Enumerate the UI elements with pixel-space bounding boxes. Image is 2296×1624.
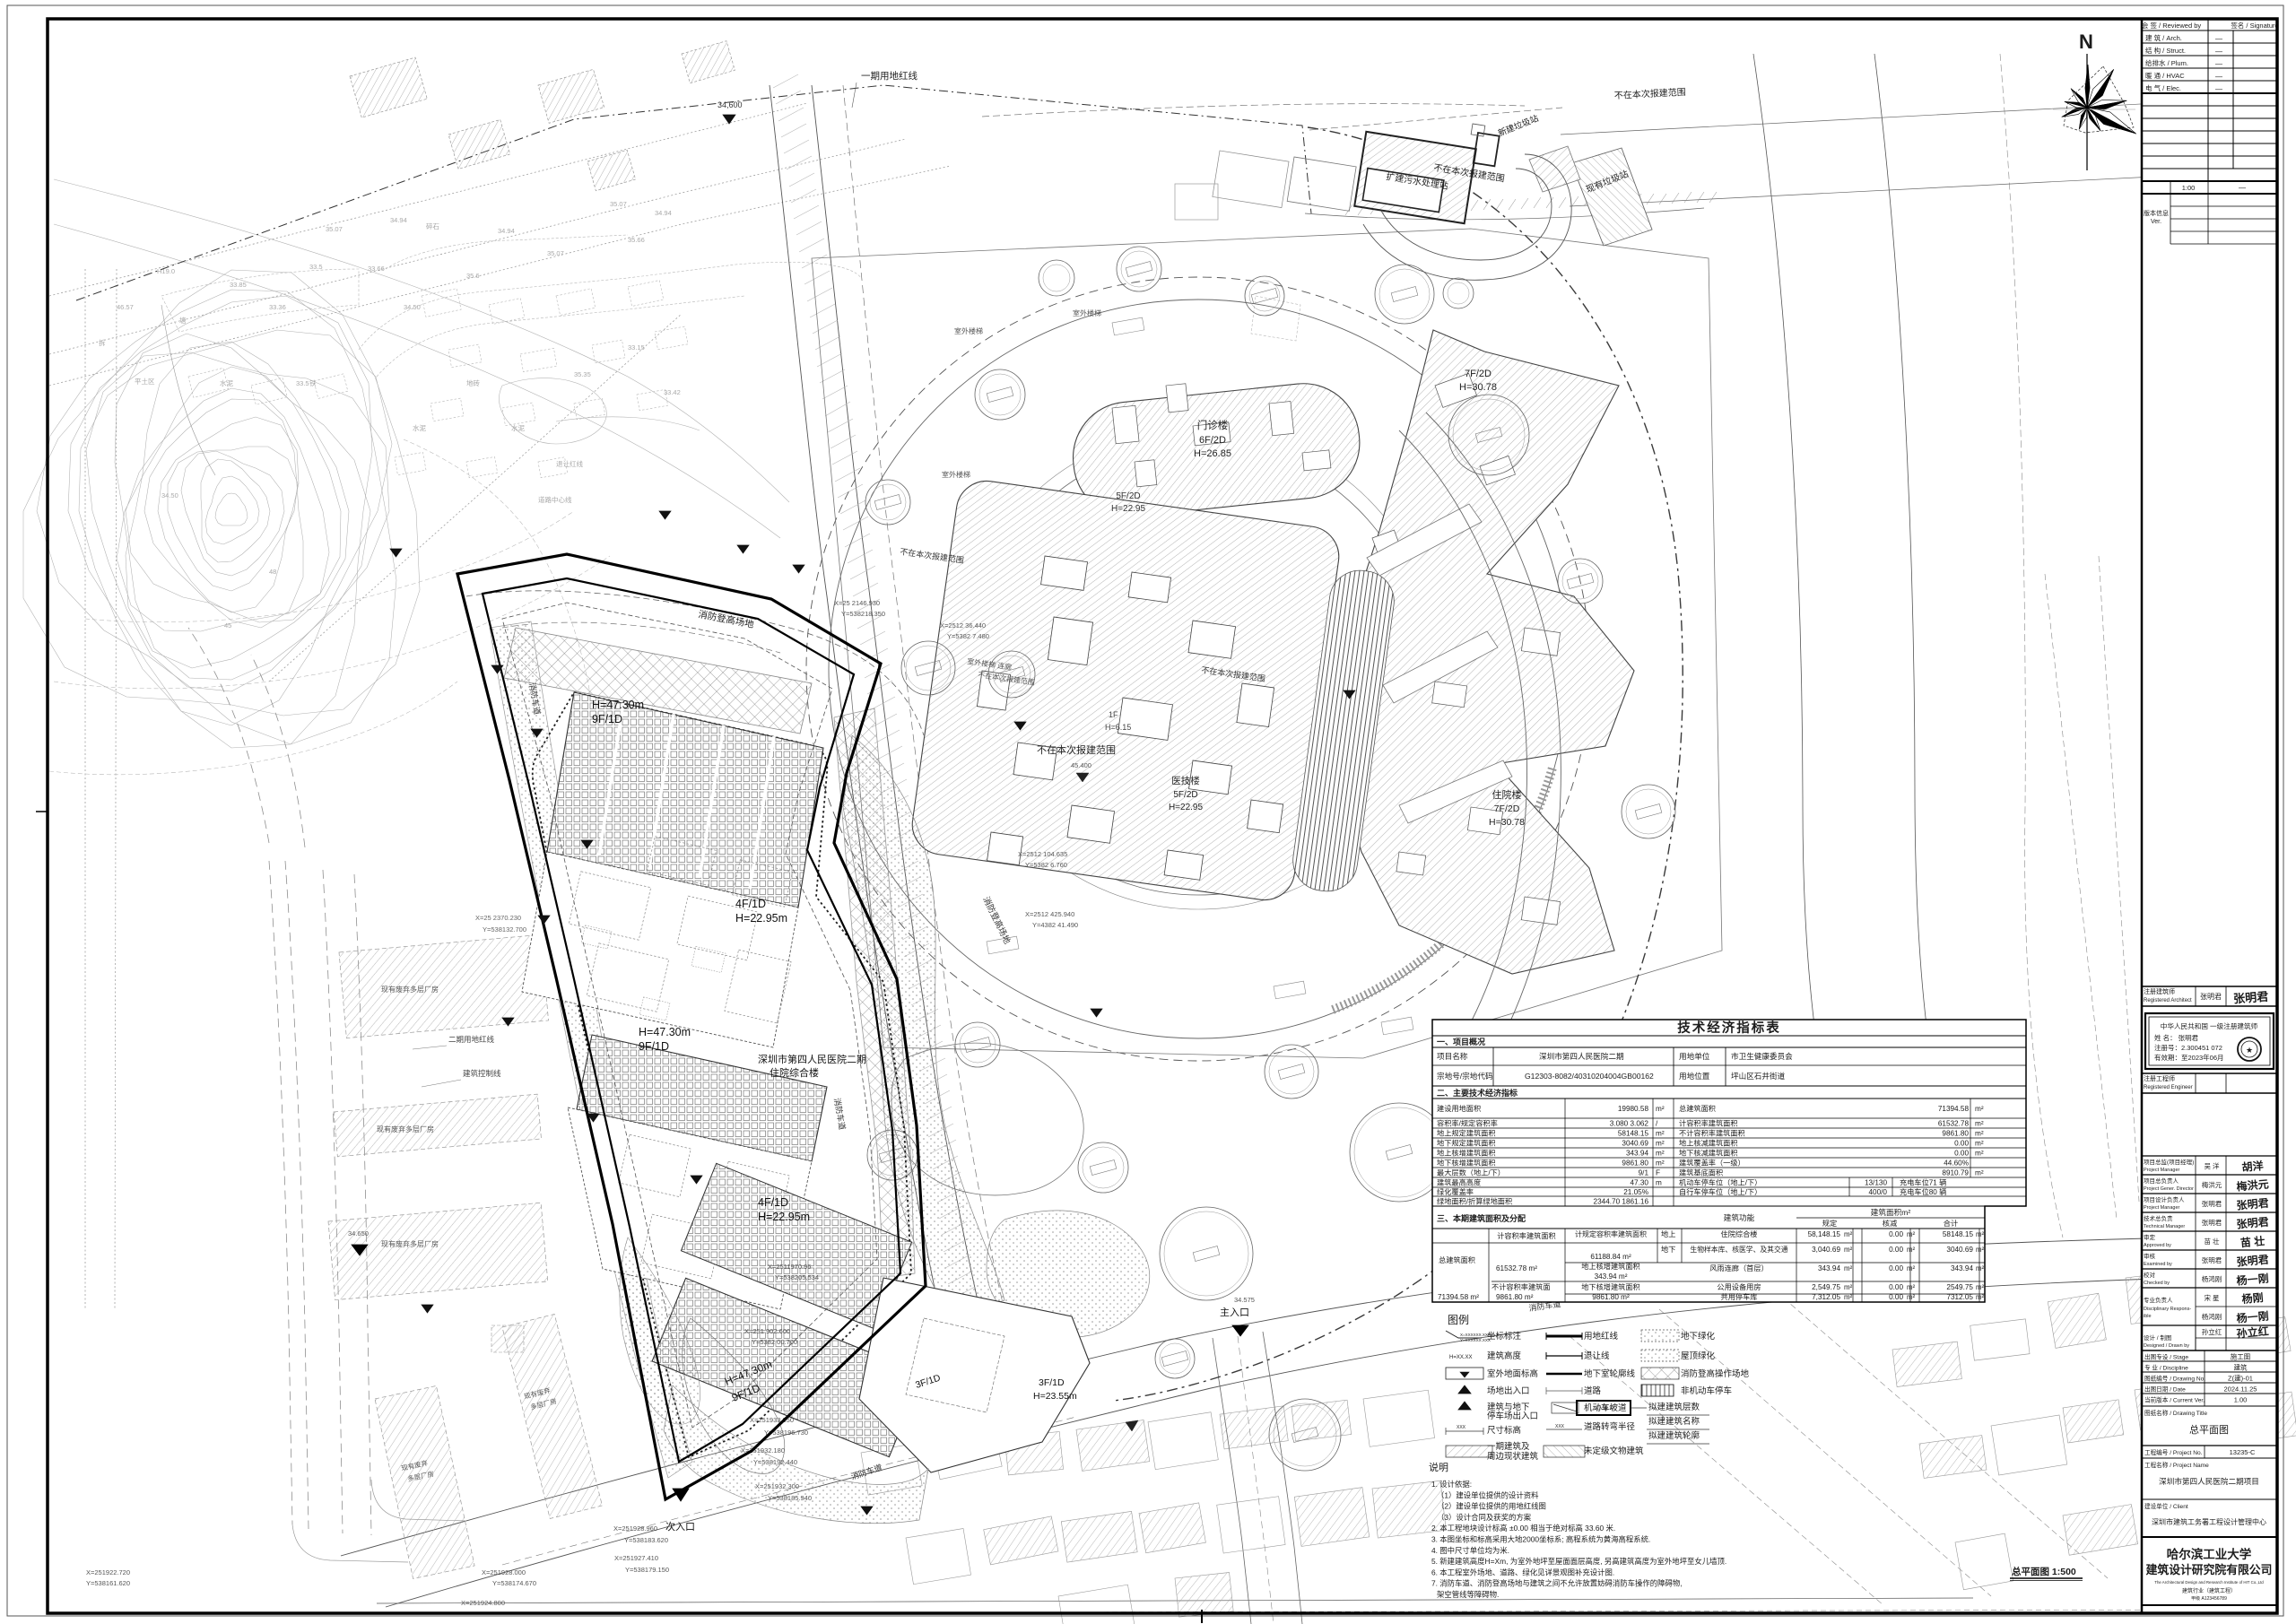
svg-text:共用停车库: 共用停车库 xyxy=(1721,1292,1758,1301)
svg-text:张明君: 张明君 xyxy=(2200,993,2222,1001)
svg-text:33.85: 33.85 xyxy=(230,281,247,289)
svg-text:注册号：2.300451 072: 注册号：2.300451 072 xyxy=(2154,1043,2222,1052)
svg-text:停车场出入口: 停车场出入口 xyxy=(1487,1411,1538,1421)
svg-text:会 签 / Reviewed by: 会 签 / Reviewed by xyxy=(2142,21,2202,30)
svg-text:H=22.95m: H=22.95m xyxy=(758,1211,810,1223)
svg-text:m²: m² xyxy=(1656,1150,1665,1158)
svg-text:项目名称: 项目名称 xyxy=(1437,1051,1468,1061)
svg-text:Technical Manager: Technical Manager xyxy=(2144,1224,2185,1229)
svg-text:34.94: 34.94 xyxy=(655,209,672,217)
svg-text:主入口: 主入口 xyxy=(1220,1307,1249,1318)
svg-text:水泥: 水泥 xyxy=(413,423,426,432)
svg-text:—: — xyxy=(2215,48,2222,56)
svg-text:二、主要技术经济指标: 二、主要技术经济指标 xyxy=(1437,1088,1518,1098)
svg-text:m²: m² xyxy=(1656,1130,1665,1138)
svg-text:58,148.15: 58,148.15 xyxy=(1808,1230,1841,1238)
svg-text:场地出入口: 场地出入口 xyxy=(1487,1385,1530,1396)
svg-text:400/0: 400/0 xyxy=(1869,1188,1888,1196)
svg-text:梅洪元: 梅洪元 xyxy=(2236,1177,2269,1193)
svg-text:33.42: 33.42 xyxy=(664,388,681,396)
svg-text:建筑面积m²: 建筑面积m² xyxy=(1871,1207,1911,1217)
svg-text:一、项目概况: 一、项目概况 xyxy=(1437,1037,1485,1046)
svg-text:住院楼: 住院楼 xyxy=(1492,788,1522,801)
svg-text:（3）设计合同及获奖的方案: （3）设计合同及获奖的方案 xyxy=(1437,1513,1532,1522)
svg-text:建设用地面积: 建设用地面积 xyxy=(1437,1104,1481,1113)
svg-text:34.50: 34.50 xyxy=(404,303,421,311)
svg-text:室外楼梯: 室外楼梯 xyxy=(942,470,970,479)
svg-text:宋 星: 宋 星 xyxy=(2204,1293,2220,1302)
svg-text:Y=538179.150: Y=538179.150 xyxy=(625,1566,669,1574)
svg-text:（2）建设单位提供的用地红线图: （2）建设单位提供的用地红线图 xyxy=(1437,1502,1546,1511)
svg-text:Examined by: Examined by xyxy=(2144,1262,2172,1267)
svg-text:H=22.95: H=22.95 xyxy=(1111,504,1146,514)
svg-text:—: — xyxy=(2215,85,2222,93)
svg-text:用地单位: 用地单位 xyxy=(1679,1051,1710,1061)
svg-text:技术总负责: 技术总负责 xyxy=(2144,1214,2173,1222)
svg-text:X=251927.410: X=251927.410 xyxy=(614,1554,658,1562)
svg-text:拆: 拆 xyxy=(99,338,106,347)
svg-text:建筑覆盖率（一级）: 建筑覆盖率（一级） xyxy=(1679,1159,1745,1168)
svg-text:Y=538161.620: Y=538161.620 xyxy=(86,1579,130,1587)
svg-text:深圳市第四人民医院二期: 深圳市第四人民医院二期 xyxy=(1539,1051,1624,1061)
svg-text:计容积率建筑面积: 计容积率建筑面积 xyxy=(1497,1231,1556,1240)
svg-text:m²: m² xyxy=(1976,1246,1984,1254)
svg-text:张明君: 张明君 xyxy=(2236,1214,2269,1230)
svg-text:拟建建筑层数: 拟建建筑层数 xyxy=(1648,1402,1700,1412)
svg-text:不在本次报建范围: 不在本次报建范围 xyxy=(1037,743,1116,756)
svg-text:3040.69: 3040.69 xyxy=(1622,1140,1648,1148)
svg-text:出图专设 / Stage: 出图专设 / Stage xyxy=(2144,1353,2188,1361)
svg-text:4F/1D: 4F/1D xyxy=(735,898,766,910)
svg-text:注册建筑师: 注册建筑师 xyxy=(2144,987,2175,995)
svg-text:给排水 / Plum.: 给排水 / Plum. xyxy=(2145,58,2188,67)
svg-text:审核: 审核 xyxy=(2144,1252,2156,1260)
svg-text:杨鸿刚: 杨鸿刚 xyxy=(2202,1274,2222,1283)
svg-text:1:00: 1:00 xyxy=(2182,184,2196,192)
svg-text:m²: m² xyxy=(1907,1283,1915,1291)
svg-text:19980.58: 19980.58 xyxy=(1618,1105,1649,1113)
svg-text:工程编号 / Project No.: 工程编号 / Project No. xyxy=(2144,1448,2203,1456)
svg-text:9861.80: 9861.80 xyxy=(1622,1159,1648,1168)
svg-text:m²: m² xyxy=(1844,1230,1852,1238)
svg-text:X=2511970.96: X=2511970.96 xyxy=(768,1263,811,1271)
svg-text:34.50: 34.50 xyxy=(161,491,178,499)
svg-text:m²: m² xyxy=(1975,1120,1984,1128)
svg-text:张明君: 张明君 xyxy=(2202,1200,2222,1208)
svg-text:版本信息: 版本信息 xyxy=(2144,209,2169,217)
svg-text:33.15: 33.15 xyxy=(628,343,645,352)
svg-text:核减: 核减 xyxy=(1883,1219,1897,1228)
svg-text:71394.58: 71394.58 xyxy=(1938,1105,1970,1113)
svg-text:杨一刚: 杨一刚 xyxy=(2236,1308,2269,1324)
svg-text:33.66: 33.66 xyxy=(368,265,385,273)
svg-text:医技楼: 医技楼 xyxy=(1171,775,1200,786)
svg-text:0.00: 0.00 xyxy=(1954,1150,1969,1158)
svg-text:N: N xyxy=(2079,30,2093,53)
svg-text:现有废弃多层厂房: 现有废弃多层厂房 xyxy=(377,1125,434,1133)
svg-text:Checked by: Checked by xyxy=(2144,1281,2170,1286)
svg-text:地下室轮廓线: 地下室轮廓线 xyxy=(1584,1368,1636,1379)
svg-text:（1）建设单位提供的设计资料: （1）建设单位提供的设计资料 xyxy=(1437,1490,1539,1499)
svg-text:44.60%: 44.60% xyxy=(1944,1159,1969,1168)
svg-text:X=251928.000: X=251928.000 xyxy=(482,1568,526,1576)
svg-text:X=251928.960: X=251928.960 xyxy=(613,1524,657,1533)
svg-text:0.00: 0.00 xyxy=(1889,1264,1903,1272)
svg-text:道路中心线: 道路中心线 xyxy=(538,495,572,504)
svg-text:0.00: 0.00 xyxy=(1889,1246,1903,1254)
svg-text:总建筑面积: 总建筑面积 xyxy=(1679,1104,1716,1113)
svg-text:H=30.78: H=30.78 xyxy=(1489,817,1525,828)
svg-text:★: ★ xyxy=(2246,1046,2253,1055)
svg-text:35.07: 35.07 xyxy=(610,200,627,208)
svg-text:当前版本 / Current Ver.: 当前版本 / Current Ver. xyxy=(2144,1396,2205,1404)
svg-text:Y=5382 6.760: Y=5382 6.760 xyxy=(1025,861,1067,869)
svg-text:充电车位71 辆: 充电车位71 辆 xyxy=(1900,1178,1946,1187)
svg-text:工程名称 / Project Name: 工程名称 / Project Name xyxy=(2144,1461,2209,1469)
svg-text:m²: m² xyxy=(1907,1230,1915,1238)
svg-text:34.650: 34.650 xyxy=(348,1229,369,1238)
svg-text:m²: m² xyxy=(1844,1264,1852,1272)
svg-text:碎石: 碎石 xyxy=(426,221,439,230)
svg-text:X=25 2146.930: X=25 2146.930 xyxy=(834,599,880,607)
svg-text:地上核增建筑面积: 地上核增建筑面积 xyxy=(1581,1262,1640,1271)
svg-text:地上: 地上 xyxy=(1661,1229,1675,1238)
svg-text:21.05%: 21.05% xyxy=(1623,1188,1648,1196)
svg-text:m²: m² xyxy=(1907,1246,1915,1254)
svg-text:甲级 A123456789: 甲级 A123456789 xyxy=(2191,1595,2227,1602)
svg-text:m²: m² xyxy=(1656,1159,1665,1168)
svg-text:次入口: 次入口 xyxy=(665,1520,695,1533)
svg-text:张明君: 张明君 xyxy=(2236,1195,2269,1211)
svg-text:9/1: 9/1 xyxy=(1639,1169,1649,1177)
svg-text:地下核增建筑面积: 地下核增建筑面积 xyxy=(1581,1282,1640,1291)
svg-text:建筑最高高度: 建筑最高高度 xyxy=(1437,1178,1481,1187)
svg-text:6. 本工程室外场地、道路、绿化见详景观图补充设计图.: 6. 本工程室外场地、道路、绿化见详景观图补充设计图. xyxy=(1431,1568,1614,1576)
svg-text:35.6: 35.6 xyxy=(466,272,480,280)
svg-text:The Architectural Design and R: The Architectural Design and Research In… xyxy=(2154,1580,2264,1585)
svg-text:m: m xyxy=(1656,1179,1662,1187)
svg-text:拟建建筑名称: 拟建建筑名称 xyxy=(1648,1416,1700,1427)
svg-text:9861.80: 9861.80 xyxy=(1942,1130,1969,1138)
svg-text:塘: 塘 xyxy=(179,316,187,325)
svg-text:拟建建筑轮廓: 拟建建筑轮廓 xyxy=(1648,1430,1700,1441)
svg-text:设计 / 制图: 设计 / 制图 xyxy=(2144,1333,2171,1342)
svg-text:退让红线: 退让红线 xyxy=(556,459,583,468)
svg-text:—: — xyxy=(2215,35,2222,43)
svg-text:61532.78 m²: 61532.78 m² xyxy=(1496,1264,1537,1272)
svg-text:—: — xyxy=(2215,60,2222,68)
svg-text:建筑设计研究院有限公司: 建筑设计研究院有限公司 xyxy=(2146,1563,2273,1576)
svg-text:校对: 校对 xyxy=(2144,1271,2156,1279)
svg-text:Y=538218.350: Y=538218.350 xyxy=(841,610,885,618)
svg-text:最大层数（地上/下）: 最大层数（地上/下） xyxy=(1437,1168,1505,1177)
svg-text:平土区: 平土区 xyxy=(135,377,155,386)
svg-text:34.94: 34.94 xyxy=(390,216,407,224)
svg-text:33.36: 33.36 xyxy=(269,303,286,311)
svg-text:m²: m² xyxy=(1976,1283,1984,1291)
svg-text:机动车停车位（地上/下）: 机动车停车位（地上/下） xyxy=(1679,1178,1761,1187)
svg-text:有效期：至2023年06月: 有效期：至2023年06月 xyxy=(2154,1053,2224,1062)
svg-text:苗 壮: 苗 壮 xyxy=(2204,1237,2220,1246)
svg-text:项目总负责人: 项目总负责人 xyxy=(2144,1177,2179,1185)
svg-text:室外地面标高: 室外地面标高 xyxy=(1487,1368,1538,1379)
svg-text:张明君: 张明君 xyxy=(2202,1256,2222,1264)
svg-text:Y=538205.534: Y=538205.534 xyxy=(775,1273,819,1281)
svg-text:住院综合楼: 住院综合楼 xyxy=(770,1066,819,1079)
svg-text:二期用地红线: 二期用地红线 xyxy=(448,1035,495,1044)
svg-text:张明君: 张明君 xyxy=(2233,990,2269,1006)
svg-text:建设单位 / Client: 建设单位 / Client xyxy=(2144,1502,2188,1510)
svg-text:58148.15: 58148.15 xyxy=(1618,1130,1649,1138)
svg-text:计规定容积率建筑面积: 计规定容积率建筑面积 xyxy=(1575,1229,1647,1238)
svg-text:一期用地红线: 一期用地红线 xyxy=(861,70,918,82)
svg-text:门诊楼: 门诊楼 xyxy=(1197,419,1229,431)
svg-text:出图日期 / Date: 出图日期 / Date xyxy=(2144,1385,2186,1394)
svg-text:X=2512 425.940: X=2512 425.940 xyxy=(1025,910,1074,918)
svg-text:Z(建)-01: Z(建)-01 xyxy=(2228,1374,2253,1383)
svg-text:X=2512 36.440: X=2512 36.440 xyxy=(940,621,986,630)
svg-text:用地位置: 用地位置 xyxy=(1679,1071,1710,1081)
svg-text:34.94: 34.94 xyxy=(498,227,515,235)
svg-text:XXX: XXX xyxy=(1555,1424,1565,1429)
svg-text:H=22.95: H=22.95 xyxy=(1169,803,1204,812)
svg-text:中华人民共和国 一级注册建筑师: 中华人民共和国 一级注册建筑师 xyxy=(2161,1021,2258,1030)
svg-text:深圳市第四人民医院二期: 深圳市第四人民医院二期 xyxy=(758,1053,866,1065)
svg-text:施工图: 施工图 xyxy=(2231,1352,2251,1361)
svg-text:35.35: 35.35 xyxy=(574,370,591,378)
svg-text:33.5: 33.5 xyxy=(296,379,309,387)
svg-text:道路: 道路 xyxy=(1584,1385,1602,1396)
svg-text:杨一刚: 杨一刚 xyxy=(2236,1271,2269,1287)
svg-text:Y=4382 41.490: Y=4382 41.490 xyxy=(1032,921,1078,929)
svg-text:建筑: 建筑 xyxy=(2234,1363,2248,1372)
svg-text:杨刚: 杨刚 xyxy=(2241,1290,2264,1306)
svg-text:X=25 2370.230: X=25 2370.230 xyxy=(475,914,521,922)
svg-text:3. 本图坐标和标高采用大地2000坐标系; 高程系统为黄海: 3. 本图坐标和标高采用大地2000坐标系; 高程系统为黄海高程系统. xyxy=(1431,1535,1650,1544)
svg-text:Y=538174.670: Y=538174.670 xyxy=(492,1579,536,1587)
svg-text:屋顶绿化: 屋顶绿化 xyxy=(1681,1350,1716,1361)
svg-text:m²: m² xyxy=(1844,1246,1852,1254)
svg-text:61188.84 m²: 61188.84 m² xyxy=(1590,1253,1631,1261)
svg-text:H=30.78: H=30.78 xyxy=(1459,382,1497,393)
svg-text:总建筑面积: 总建筑面积 xyxy=(1439,1255,1475,1264)
svg-text:绿地面积/折算绿地面积: 绿地面积/折算绿地面积 xyxy=(1437,1197,1512,1206)
svg-text:0.00: 0.00 xyxy=(1889,1283,1903,1291)
svg-text:说明: 说明 xyxy=(1429,1461,1448,1473)
svg-text:X=251924.800: X=251924.800 xyxy=(461,1599,505,1607)
svg-text:退让线: 退让线 xyxy=(1584,1350,1610,1361)
svg-text:建筑基底面积: 建筑基底面积 xyxy=(1679,1168,1723,1177)
svg-text:H=47.30m: H=47.30m xyxy=(592,699,644,711)
svg-text:7F/2D: 7F/2D xyxy=(1465,369,1492,379)
svg-text:地上核增建筑面积: 地上核增建筑面积 xyxy=(1437,1149,1496,1158)
svg-text:室外楼梯: 室外楼梯 xyxy=(1073,308,1101,317)
svg-text:m²: m² xyxy=(1975,1130,1984,1138)
svg-text:三、本期建筑面积及分配: 三、本期建筑面积及分配 xyxy=(1437,1213,1526,1223)
svg-text:公用设备用房: 公用设备用房 xyxy=(1717,1282,1761,1291)
svg-text:图纸名称 / Drawing Title: 图纸名称 / Drawing Title xyxy=(2144,1409,2207,1417)
svg-text:F: F xyxy=(1656,1169,1660,1177)
svg-text:梅洪元: 梅洪元 xyxy=(2202,1180,2222,1189)
svg-text:Y=XXXXXX.XXX: Y=XXXXXX.XXX xyxy=(1460,1338,1491,1342)
svg-text:张明君: 张明君 xyxy=(2202,1219,2222,1227)
svg-text:道路转弯半径: 道路转弯半径 xyxy=(1584,1421,1636,1432)
svg-text:生物样本库、核医学、及其交通: 生物样本库、核医学、及其交通 xyxy=(1690,1245,1787,1254)
svg-text:45: 45 xyxy=(224,621,231,630)
svg-text:m²: m² xyxy=(1975,1169,1984,1177)
svg-text:m²: m² xyxy=(1656,1140,1665,1148)
svg-text:消防登高操作场地: 消防登高操作场地 xyxy=(1681,1368,1750,1379)
svg-text:项目总监(项目经理): 项目总监(项目经理) xyxy=(2144,1158,2194,1166)
svg-text:注册工程师: 注册工程师 xyxy=(2144,1074,2175,1082)
svg-text:5F/2D: 5F/2D xyxy=(1173,790,1197,800)
svg-text:2. 本工程地块设计标高 ±0.00 相当于绝对标高 33.: 2. 本工程地块设计标高 ±0.00 相当于绝对标高 33.60 米. xyxy=(1431,1524,1615,1533)
svg-text:4. 图中尺寸单位均为米.: 4. 图中尺寸单位均为米. xyxy=(1431,1546,1509,1555)
svg-text:Disciplinary Respons-: Disciplinary Respons- xyxy=(2144,1307,2191,1312)
svg-text:总平面图 1:500: 总平面图 1:500 xyxy=(2012,1566,2076,1577)
svg-text:建筑高度: 建筑高度 xyxy=(1487,1350,1522,1361)
svg-text:非机动车停车: 非机动车停车 xyxy=(1681,1385,1732,1396)
svg-text:计容积率建筑面积: 计容积率建筑面积 xyxy=(1679,1119,1738,1128)
svg-text:坪山区石井街道: 坪山区石井街道 xyxy=(1731,1071,1786,1081)
svg-text:结 构 / Struct.: 结 构 / Struct. xyxy=(2145,46,2186,55)
svg-text:深圳市第四人民医院二期项目: 深圳市第四人民医院二期项目 xyxy=(2159,1476,2259,1486)
svg-text:合计: 合计 xyxy=(1944,1219,1958,1228)
svg-text:71394.58 m²: 71394.58 m² xyxy=(1438,1293,1479,1301)
svg-text:5F/2D: 5F/2D xyxy=(1116,491,1140,501)
svg-text:2,549.75: 2,549.75 xyxy=(1812,1283,1840,1291)
svg-text:H=22.95m: H=22.95m xyxy=(735,912,787,925)
svg-text:35.07: 35.07 xyxy=(547,249,564,257)
svg-text:47.30: 47.30 xyxy=(1631,1179,1649,1187)
svg-text:深圳市建筑工务署工程设计管理中心: 深圳市建筑工务署工程设计管理中心 xyxy=(2152,1517,2266,1526)
svg-text:m²: m² xyxy=(1907,1264,1915,1272)
svg-text:容积率/规定容积率: 容积率/规定容积率 xyxy=(1437,1119,1498,1128)
svg-text:水泥: 水泥 xyxy=(511,423,525,432)
svg-text:地下绿化: 地下绿化 xyxy=(1681,1331,1716,1342)
svg-text:—: — xyxy=(2239,184,2246,192)
svg-text:m²: m² xyxy=(1844,1283,1852,1291)
svg-text:哈尔滨工业大学: 哈尔滨工业大学 xyxy=(2167,1547,2252,1561)
svg-text:项目设计负责人: 项目设计负责人 xyxy=(2144,1195,2185,1203)
svg-text:Registered Architect: Registered Architect xyxy=(2144,998,2192,1003)
svg-text:市卫生健康委员会: 市卫生健康委员会 xyxy=(1731,1051,1793,1061)
svg-text:签名 / Signature: 签名 / Signature xyxy=(2231,21,2278,30)
svg-text:343.94: 343.94 xyxy=(1626,1150,1648,1158)
svg-text:Project Manager: Project Manager xyxy=(2144,1205,2180,1211)
svg-text:Ver.: Ver. xyxy=(2151,219,2161,225)
svg-text:一期建筑及: 一期建筑及 xyxy=(1487,1441,1530,1452)
svg-text:室外楼梯: 室外楼梯 xyxy=(954,326,983,335)
svg-text:地砖: 地砖 xyxy=(466,378,480,387)
svg-text:Registered Engineer: Registered Engineer xyxy=(2144,1085,2193,1090)
svg-text:m²: m² xyxy=(1976,1230,1984,1238)
svg-text:X=251922.720: X=251922.720 xyxy=(86,1568,130,1576)
svg-text:H=23.55m: H=23.55m xyxy=(1033,1391,1077,1402)
svg-text:XXX: XXX xyxy=(1457,1425,1466,1430)
svg-text:m²: m² xyxy=(1975,1150,1984,1158)
svg-text:3,040.69: 3,040.69 xyxy=(1812,1246,1840,1254)
svg-text:13235-C: 13235-C xyxy=(2230,1448,2256,1456)
svg-text:6F/2D: 6F/2D xyxy=(1199,435,1226,446)
svg-text:铁: 铁 xyxy=(309,378,317,387)
svg-text:ible: ible xyxy=(2144,1314,2152,1319)
svg-text:风雨连廊（首层）: 风雨连廊（首层） xyxy=(1709,1264,1769,1272)
svg-text:35.66: 35.66 xyxy=(628,236,645,244)
svg-text:343.94 m²: 343.94 m² xyxy=(1595,1272,1628,1281)
svg-text:地下核增建筑面积: 地下核增建筑面积 xyxy=(1437,1159,1496,1168)
svg-text:1.00: 1.00 xyxy=(2234,1396,2248,1404)
svg-text:地下: 地下 xyxy=(1661,1245,1675,1254)
svg-text:自行车停车位（地上/下）: 自行车停车位（地上/下） xyxy=(1679,1187,1761,1196)
svg-text:61532.78: 61532.78 xyxy=(1938,1120,1970,1128)
svg-text:不计容积率建筑面: 不计容积率建筑面 xyxy=(1492,1282,1551,1291)
svg-text:45.400: 45.400 xyxy=(1071,761,1091,769)
svg-text:地下核减建筑面积: 地下核减建筑面积 xyxy=(1679,1149,1738,1158)
svg-text:2549.75: 2549.75 xyxy=(1946,1283,1973,1291)
svg-text:9F/1D: 9F/1D xyxy=(639,1040,669,1053)
svg-text:尺寸标高: 尺寸标高 xyxy=(1487,1425,1521,1436)
svg-text:3F/1D: 3F/1D xyxy=(1039,1377,1065,1388)
svg-text:1F: 1F xyxy=(1109,710,1118,719)
svg-text:X入建 X: X入建 X xyxy=(1595,1404,1613,1411)
svg-text:G12303-8082/40310204004GB00162: G12303-8082/40310204004GB00162 xyxy=(1525,1072,1654,1081)
svg-text:9861.80 m²: 9861.80 m² xyxy=(1496,1293,1534,1301)
svg-text:4F/1D: 4F/1D xyxy=(758,1196,788,1209)
svg-text:周边现状建筑: 周边现状建筑 xyxy=(1487,1451,1539,1462)
svg-text:技术经济指标表: 技术经济指标表 xyxy=(1677,1020,1781,1036)
svg-text:46.57: 46.57 xyxy=(117,303,134,311)
svg-text:地上核减建筑面积: 地上核减建筑面积 xyxy=(1679,1139,1738,1148)
svg-text:7. 消防车道、消防登高场地与建筑之间不允许放置妨碍消防车操: 7. 消防车道、消防登高场地与建筑之间不允许放置妨碍消防车操作的障碍物, xyxy=(1431,1579,1683,1588)
svg-text:X=2512 104.635: X=2512 104.635 xyxy=(1018,850,1067,858)
svg-text:建筑控制线: 建筑控制线 xyxy=(463,1069,501,1078)
svg-text:Project Gener. Director: Project Gener. Director xyxy=(2144,1186,2194,1192)
svg-text:Approved by: Approved by xyxy=(2144,1243,2171,1248)
svg-text:建 筑 / Arch.: 建 筑 / Arch. xyxy=(2145,33,2182,42)
svg-text:Designed / Drawn by: Designed / Drawn by xyxy=(2144,1343,2189,1349)
svg-text:3040.69: 3040.69 xyxy=(1946,1246,1973,1254)
svg-text:电 气 / Elec.: 电 气 / Elec. xyxy=(2145,83,2181,92)
svg-text:Y=5382 00.700: Y=5382 00.700 xyxy=(752,1338,797,1346)
svg-text:48: 48 xyxy=(269,568,276,576)
svg-text:H19.0: H19.0 xyxy=(157,267,175,275)
svg-text:m²: m² xyxy=(1975,1140,1984,1148)
svg-text:H=47.30m: H=47.30m xyxy=(639,1026,691,1038)
svg-text:343.94: 343.94 xyxy=(1818,1264,1840,1272)
svg-text:2344.70 1861.16: 2344.70 1861.16 xyxy=(1594,1198,1649,1206)
svg-text:m²: m² xyxy=(1975,1105,1984,1113)
svg-text:暖 通 / HVAC: 暖 通 / HVAC xyxy=(2145,71,2185,80)
svg-text:34.575: 34.575 xyxy=(1234,1296,1255,1304)
svg-text:0.00: 0.00 xyxy=(1889,1230,1903,1238)
svg-text:水泥: 水泥 xyxy=(220,378,233,387)
svg-text:Project Manager: Project Manager xyxy=(2144,1168,2180,1173)
svg-text:现有废弃多层厂房: 现有废弃多层厂房 xyxy=(381,1239,439,1248)
svg-text:架空管线等障碍物.: 架空管线等障碍物. xyxy=(1437,1590,1499,1599)
svg-text:Y=5382 7.480: Y=5382 7.480 xyxy=(947,632,989,640)
svg-text:—: — xyxy=(2215,73,2222,81)
svg-text:X=251 902.600: X=251 902.600 xyxy=(744,1327,790,1335)
svg-text:9F/1D: 9F/1D xyxy=(592,713,622,725)
svg-text:Y=538132.700: Y=538132.700 xyxy=(483,925,526,934)
svg-text:建筑功能: 建筑功能 xyxy=(1724,1212,1755,1222)
svg-text:33.5: 33.5 xyxy=(309,263,323,271)
svg-text:58148.15: 58148.15 xyxy=(1943,1230,1974,1238)
svg-text:现有废弃多层厂房: 现有废弃多层厂房 xyxy=(381,985,439,994)
svg-text:0.00: 0.00 xyxy=(1954,1140,1969,1148)
svg-text:m²: m² xyxy=(1656,1105,1665,1113)
